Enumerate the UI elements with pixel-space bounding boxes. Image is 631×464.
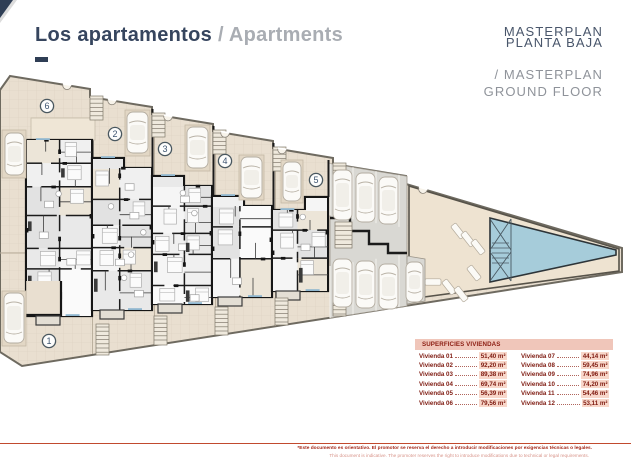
svg-text:4: 4: [222, 156, 227, 166]
svg-text:1: 1: [46, 336, 51, 346]
svg-text:3: 3: [162, 144, 167, 154]
svg-text:2: 2: [112, 129, 117, 139]
svg-text:5: 5: [313, 175, 318, 185]
svg-text:6: 6: [44, 101, 49, 111]
